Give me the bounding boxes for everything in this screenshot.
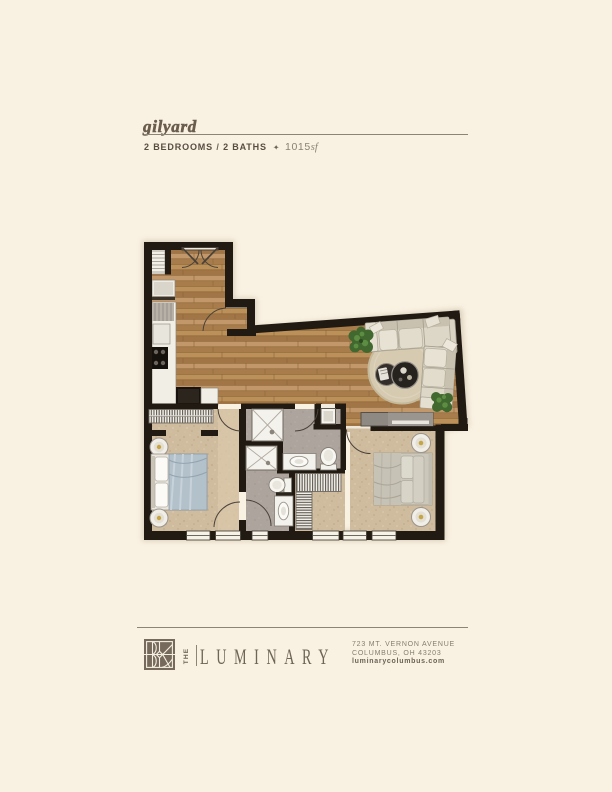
svg-text:THE: THE bbox=[183, 648, 190, 665]
